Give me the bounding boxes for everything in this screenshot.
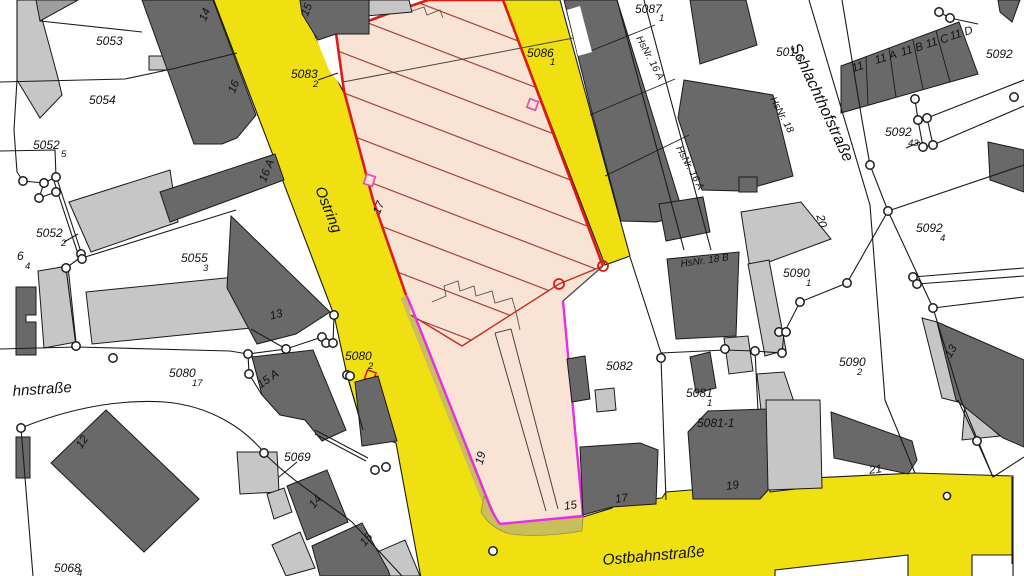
svg-text:2: 2 — [367, 361, 374, 372]
svg-text:1: 1 — [550, 57, 555, 68]
svg-text:5052: 5052 — [33, 138, 60, 152]
svg-text:5081-1: 5081-1 — [697, 416, 734, 430]
svg-text:4: 4 — [77, 568, 82, 576]
svg-text:17: 17 — [192, 378, 203, 389]
svg-text:17: 17 — [614, 492, 629, 506]
svg-text:5054: 5054 — [89, 93, 116, 107]
svg-text:19: 19 — [725, 479, 740, 493]
svg-text:2: 2 — [312, 79, 319, 90]
svg-text:2: 2 — [856, 367, 863, 378]
svg-text:43: 43 — [908, 138, 919, 149]
svg-text:1: 1 — [707, 398, 712, 409]
svg-text:21: 21 — [867, 463, 882, 477]
svg-text:5053: 5053 — [96, 34, 123, 48]
svg-text:3: 3 — [203, 263, 209, 274]
svg-text:5092: 5092 — [885, 125, 912, 139]
svg-text:5082: 5082 — [606, 359, 633, 373]
svg-text:5092: 5092 — [916, 221, 943, 235]
svg-text:4: 4 — [940, 233, 945, 244]
svg-text:5052: 5052 — [36, 226, 63, 240]
svg-text:5092: 5092 — [986, 47, 1013, 61]
svg-text:5: 5 — [61, 149, 67, 160]
svg-text:1: 1 — [806, 278, 811, 289]
svg-text:15: 15 — [563, 499, 578, 513]
svg-text:4: 4 — [25, 261, 30, 272]
svg-text:2: 2 — [60, 238, 67, 249]
svg-text:5069: 5069 — [284, 450, 311, 464]
svg-text:1: 1 — [659, 13, 664, 24]
svg-text:6: 6 — [17, 249, 24, 263]
